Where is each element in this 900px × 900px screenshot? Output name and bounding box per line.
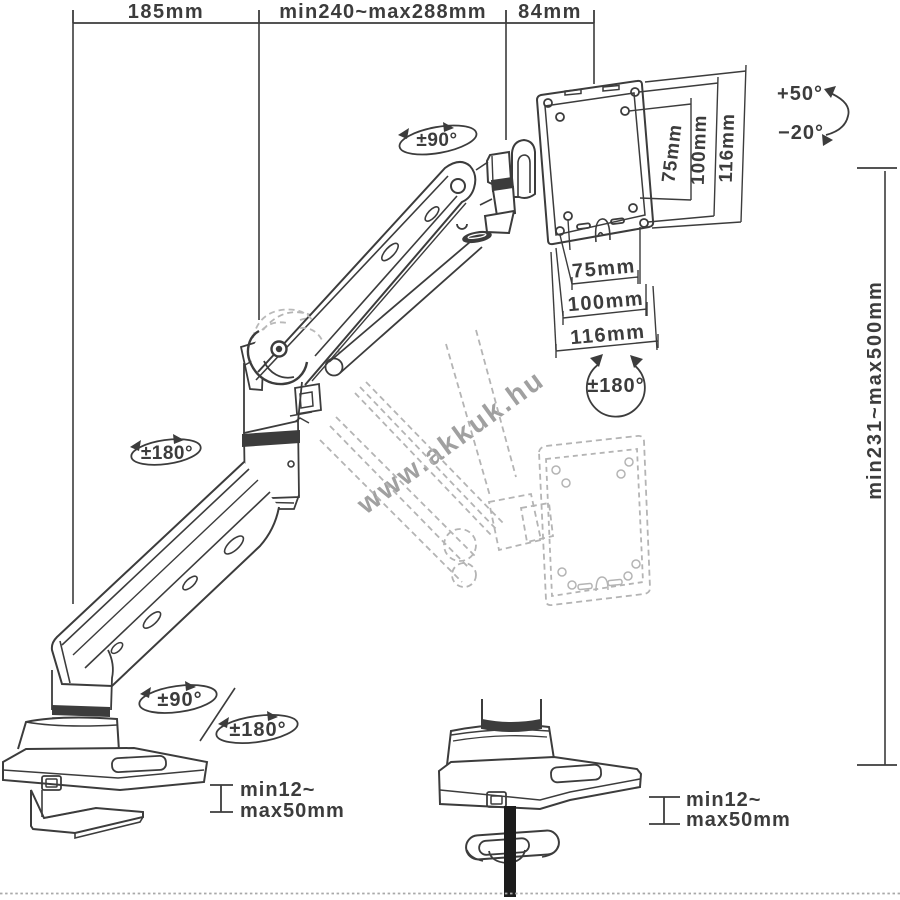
svg-text:±90°: ±90° <box>157 689 202 711</box>
svg-text:+50°: +50° <box>777 83 823 105</box>
svg-text:185mm: 185mm <box>128 1 204 23</box>
svg-text:±90°: ±90° <box>416 130 457 151</box>
svg-text:min240~max288mm: min240~max288mm <box>279 1 487 23</box>
svg-text:100mm: 100mm <box>688 114 711 185</box>
svg-text:−20°: −20° <box>778 122 824 144</box>
svg-text:±180°: ±180° <box>141 443 193 464</box>
svg-text:±180°: ±180° <box>229 719 286 741</box>
svg-text:min231~max500mm: min231~max500mm <box>864 280 886 500</box>
svg-text:116mm: 116mm <box>716 113 739 183</box>
svg-text:min12~: min12~ <box>240 779 315 801</box>
svg-text:84mm: 84mm <box>518 1 582 23</box>
svg-text:±180°: ±180° <box>587 375 644 397</box>
svg-text:max50mm: max50mm <box>240 800 345 822</box>
svg-text:min12~: min12~ <box>686 789 761 811</box>
svg-text:max50mm: max50mm <box>686 809 791 831</box>
